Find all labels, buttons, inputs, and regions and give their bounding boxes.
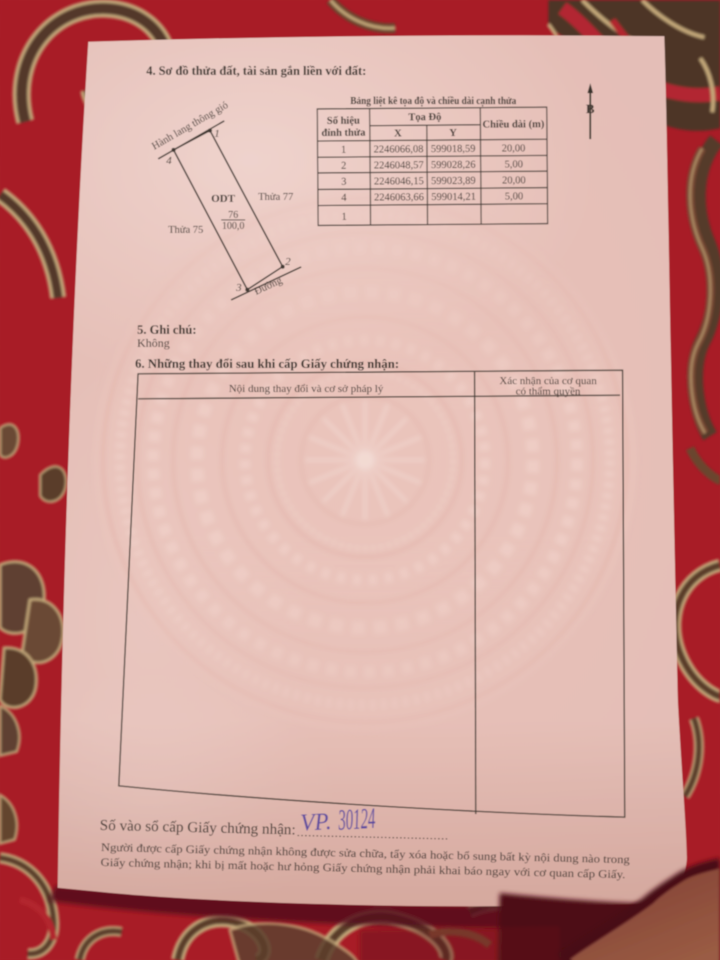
svg-text:76: 76 [228,210,238,221]
svg-text:Bảng liệt kê tọa độ và chiều d: Bảng liệt kê tọa độ và chiều dài cạnh th… [350,95,516,107]
svg-text:Tọa Độ: Tọa Độ [408,112,441,123]
svg-text:2: 2 [285,256,291,268]
svg-text:599028,26: 599028,26 [431,160,476,171]
svg-text:5,00: 5,00 [504,159,522,170]
svg-text:4: 4 [166,155,172,167]
svg-text:1: 1 [341,212,346,223]
svg-text:Y: Y [449,128,457,139]
svg-text:5. Ghi chú:: 5. Ghi chú: [137,323,196,337]
svg-text:ODT: ODT [211,193,236,205]
svg-text:3: 3 [235,282,242,294]
svg-text:2: 2 [341,161,346,172]
svg-text:2246063,66: 2246063,66 [374,192,424,203]
svg-text:X: X [394,128,402,139]
svg-text:4. Sơ đồ thửa đất, tài sản gắn: 4. Sơ đồ thửa đất, tài sản gắn liền với … [146,64,366,78]
svg-text:5,00: 5,00 [505,191,523,202]
svg-text:1: 1 [341,145,346,156]
svg-text:Không: Không [137,336,170,350]
svg-text:3: 3 [341,177,346,188]
svg-text:Chiều dài (m): Chiều dài (m) [482,119,544,131]
svg-text:2246048,57: 2246048,57 [374,160,424,171]
svg-text:đỉnh thửa: đỉnh thửa [321,128,366,139]
svg-text:599018,59: 599018,59 [431,144,476,155]
svg-text:Thửa 77: Thửa 77 [258,192,293,203]
svg-text:599023,89: 599023,89 [431,176,476,187]
svg-text:Số hiệu: Số hiệu [327,116,360,127]
svg-text:Nội dung thay đổi và cơ sở phá: Nội dung thay đổi và cơ sở pháp lý [229,383,384,395]
svg-text:VP.: VP. [300,808,332,837]
svg-text:30124: 30124 [337,803,376,837]
svg-text:2246066,08: 2246066,08 [374,144,424,155]
svg-text:Thửa 75: Thửa 75 [168,225,203,236]
svg-text:B: B [586,101,595,116]
svg-text:6. Những thay đổi sau khi cấp: 6. Những thay đổi sau khi cấp Giấy chứng… [135,357,399,371]
svg-text:20,00: 20,00 [502,175,526,186]
svg-text:có thẩm quyền: có thẩm quyền [516,386,581,398]
svg-text:599014,21: 599014,21 [431,192,476,203]
svg-text:1: 1 [214,128,220,140]
svg-text:4: 4 [341,193,347,204]
svg-text:20,00: 20,00 [502,143,526,154]
svg-text:2246046,15: 2246046,15 [374,176,424,187]
svg-text:100,0: 100,0 [222,221,245,232]
